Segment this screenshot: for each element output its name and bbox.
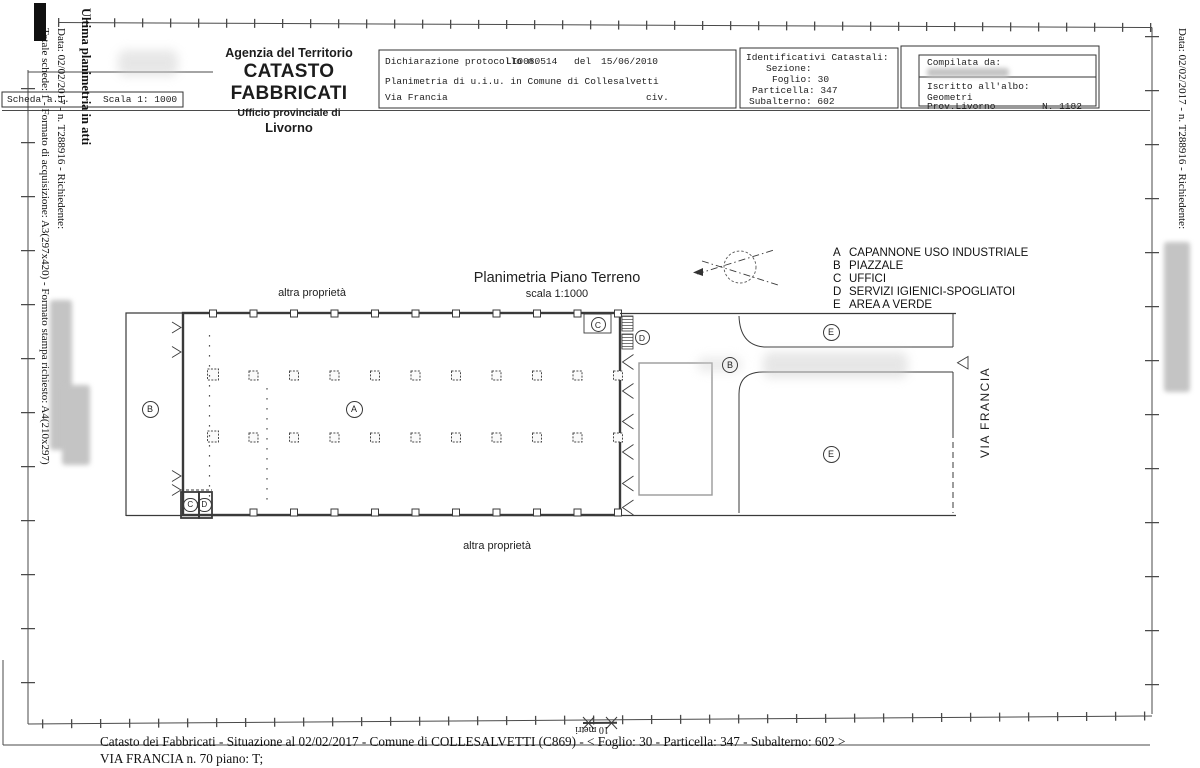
subalterno-row: Subalterno: 602 bbox=[749, 97, 835, 107]
office-label: Ufficio provinciale di bbox=[203, 107, 375, 119]
legend-label: PIAZZALE bbox=[849, 260, 903, 272]
area-label-e-top: E bbox=[823, 324, 840, 341]
legend-key: D bbox=[833, 286, 849, 299]
scan-graphics bbox=[0, 0, 1200, 768]
compiler-number: N. 1182 bbox=[1042, 102, 1082, 112]
foglio-label: Foglio: bbox=[772, 74, 812, 85]
particella-label: Particella: bbox=[752, 85, 815, 96]
area-label-d-rooms: D bbox=[197, 498, 212, 513]
declaration-civ: civ. bbox=[646, 93, 669, 103]
other-property-top: altra proprietà bbox=[252, 287, 372, 299]
margin-left-date: Data: 02/02/2017 - n. T288916 - Richiede… bbox=[55, 28, 67, 318]
legend-key: B bbox=[833, 260, 849, 273]
legend-item: DSERVIZI IGIENICI-SPOGLIATOI bbox=[833, 286, 1028, 299]
requester-redacted-left-2 bbox=[62, 385, 90, 465]
footer-situation-line: Catasto dei Fabbricati - Situazione al 0… bbox=[100, 734, 845, 750]
legend-label: AREA A VERDE bbox=[849, 299, 932, 311]
area-label-a: A bbox=[346, 401, 363, 418]
requester-redacted-right bbox=[1164, 242, 1190, 392]
scan-smudge bbox=[763, 352, 908, 378]
agency-name: Agenzia del Territorio bbox=[203, 46, 375, 60]
legend-key: E bbox=[833, 299, 849, 312]
office-city: Livorno bbox=[203, 120, 375, 135]
foglio-value: 30 bbox=[818, 74, 829, 85]
identifiers-title: Identificativi Catastali: bbox=[746, 53, 889, 63]
legend-label: UFFICI bbox=[849, 273, 886, 285]
declaration-street: Via Francia bbox=[385, 93, 448, 103]
protocol-number: LI0080514 bbox=[506, 57, 557, 67]
sezione-label: Sezione: bbox=[766, 64, 812, 74]
area-label-b-right: B bbox=[722, 357, 738, 373]
area-label-c-top: C bbox=[591, 317, 606, 332]
particella-value: 347 bbox=[820, 85, 837, 96]
subalterno-value: 602 bbox=[817, 96, 834, 107]
legend-label: SERVIZI IGIENICI-SPOGLIATOI bbox=[849, 286, 1015, 298]
plan-title: Planimetria Piano Terreno bbox=[437, 270, 677, 286]
legend-item: CUFFICI bbox=[833, 273, 1028, 286]
legend-label: CAPANNONE USO INDUSTRIALE bbox=[849, 247, 1028, 259]
margin-left-acquisition: Totale schede: 1 - Formato di acquisizio… bbox=[39, 28, 51, 533]
area-label-c-rooms: C bbox=[183, 498, 198, 513]
legend-item: ACAPANNONE USO INDUSTRIALE bbox=[833, 247, 1028, 260]
declaration-line2: Planimetria di u.i.u. in Comune di Colle… bbox=[385, 77, 659, 87]
plan-legend: ACAPANNONE USO INDUSTRIALE BPIAZZALE CUF… bbox=[833, 247, 1028, 312]
other-property-bottom: altra proprietà bbox=[437, 540, 557, 552]
compiler-name-redacted bbox=[927, 68, 1009, 77]
legend-item: EAREA A VERDE bbox=[833, 299, 1028, 312]
plan-scale: scala 1:1000 bbox=[437, 288, 677, 300]
plan-title-block: Planimetria Piano Terreno scala 1:1000 bbox=[437, 270, 677, 300]
agency-header: Agenzia del Territorio CATASTO FABBRICAT… bbox=[203, 46, 375, 135]
street-label: VIA FRANCIA bbox=[978, 362, 993, 458]
albo-label: Iscritto all'albo: bbox=[927, 82, 1030, 92]
area-label-d-right: D bbox=[635, 330, 650, 345]
protocol-date: 15/06/2010 bbox=[601, 57, 658, 67]
foglio-row: Foglio: 30 bbox=[772, 75, 829, 85]
compiler-prov: Prov.Livorno bbox=[927, 102, 995, 112]
legend-key: A bbox=[833, 247, 849, 260]
scan-smudge bbox=[118, 50, 178, 76]
compiler-title: Compilata da: bbox=[927, 58, 1001, 68]
area-label-e-bottom: E bbox=[823, 446, 840, 463]
protocol-del: del bbox=[574, 57, 591, 67]
footer-address-line: VIA FRANCIA n. 70 piano: T; bbox=[100, 751, 263, 767]
sheet-scale: Scala 1: 1000 bbox=[103, 95, 177, 105]
legend-item: BPIAZZALE bbox=[833, 260, 1028, 273]
legend-key: C bbox=[833, 273, 849, 286]
subalterno-label: Subalterno: bbox=[749, 96, 812, 107]
margin-left-title: Ultima planimetria in atti bbox=[78, 8, 93, 178]
area-label-b-left: B bbox=[142, 401, 159, 418]
register-title: CATASTO FABBRICATI bbox=[203, 61, 375, 105]
particella-row: Particella: 347 bbox=[752, 86, 838, 96]
